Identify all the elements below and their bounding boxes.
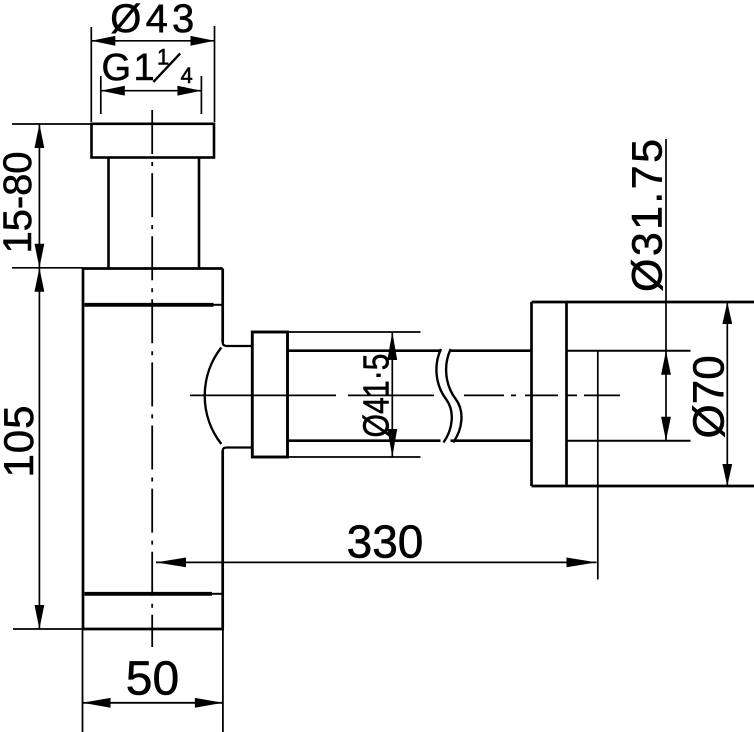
svg-text:4: 4 <box>181 63 193 88</box>
svg-text:Ø31.75: Ø31.75 <box>624 139 672 292</box>
svg-text:G: G <box>102 47 132 89</box>
svg-text:330: 330 <box>347 516 424 568</box>
svg-text:50: 50 <box>126 653 179 706</box>
svg-text:15-80: 15-80 <box>0 152 40 254</box>
svg-text:Ø70: Ø70 <box>685 355 734 438</box>
svg-text:Ø41·5: Ø41·5 <box>356 354 397 438</box>
svg-text:105: 105 <box>0 406 42 478</box>
svg-text:1: 1 <box>134 47 155 89</box>
svg-text:Ø43: Ø43 <box>110 0 194 41</box>
